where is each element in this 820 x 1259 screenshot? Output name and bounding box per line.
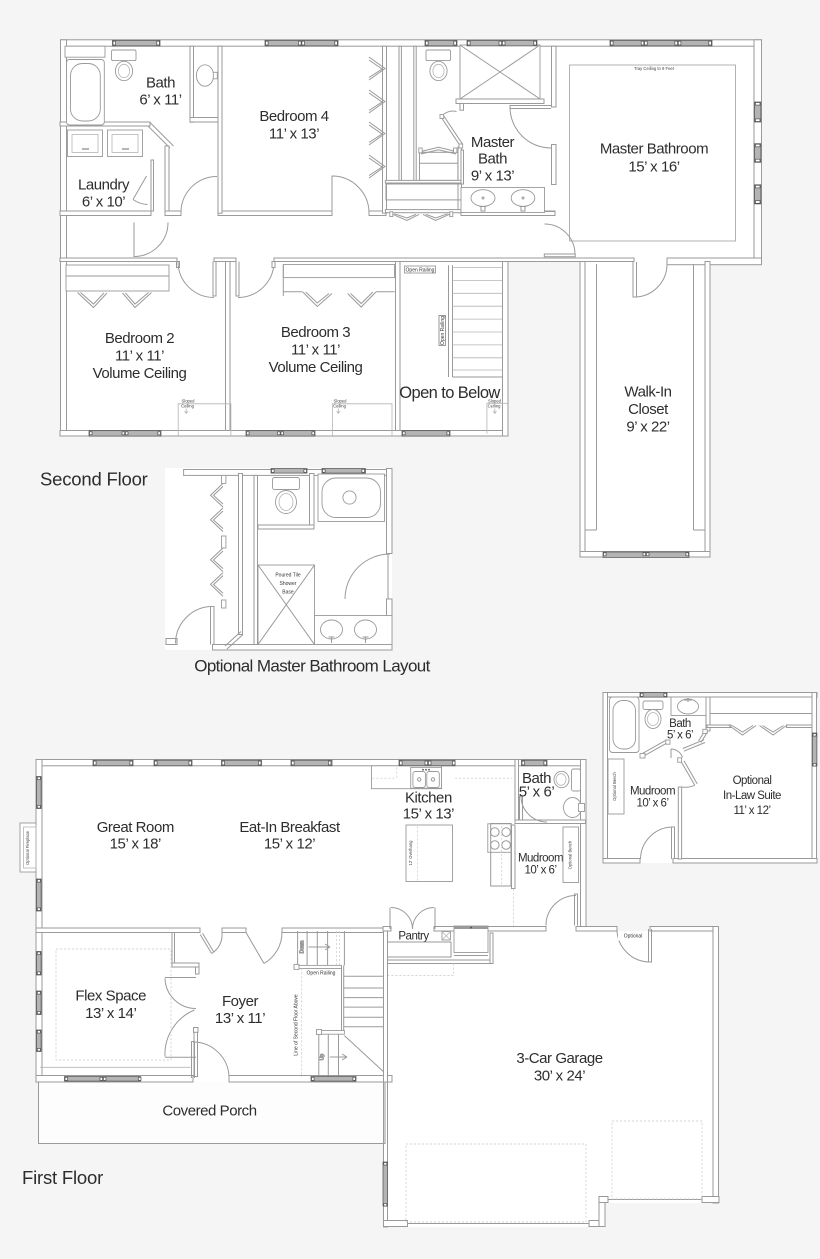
svg-text:Covered Porch: Covered Porch — [162, 1103, 256, 1120]
svg-text:10’ x 6’: 10’ x 6’ — [636, 798, 668, 810]
svg-text:13’ x 14’: 13’ x 14’ — [85, 1005, 136, 1022]
svg-text:Ceiling: Ceiling — [333, 404, 346, 409]
svg-text:Optional Bench: Optional Bench — [568, 840, 573, 869]
svg-text:Base: Base — [282, 590, 294, 596]
svg-text:Laundry: Laundry — [78, 177, 130, 194]
svg-text:Master Bathroom: Master Bathroom — [600, 141, 708, 158]
svg-text:30’ x 24’: 30’ x 24’ — [534, 1068, 585, 1085]
svg-text:Open Railing: Open Railing — [307, 971, 336, 977]
svg-text:5’ x 6’: 5’ x 6’ — [667, 730, 693, 742]
svg-text:11’ x 11’: 11’ x 11’ — [291, 342, 340, 359]
svg-text:15’ x 12’: 15’ x 12’ — [264, 836, 315, 853]
svg-text:Open to Below: Open to Below — [399, 384, 500, 402]
svg-text:Bath: Bath — [669, 718, 691, 730]
svg-text:Down: Down — [300, 940, 306, 953]
svg-text:13’ x 11’: 13’ x 11’ — [215, 1010, 265, 1027]
svg-text:Optional Master Bathroom Layou: Optional Master Bathroom Layout — [194, 657, 430, 676]
svg-text:Bedroom 3: Bedroom 3 — [281, 324, 350, 341]
svg-text:12’ Overhang: 12’ Overhang — [408, 840, 413, 866]
svg-text:Open Railing: Open Railing — [440, 316, 446, 345]
svg-text:15’ x 13’: 15’ x 13’ — [403, 806, 454, 823]
svg-text:Second Floor: Second Floor — [40, 469, 148, 490]
svg-text:9’ x 13’: 9’ x 13’ — [471, 168, 514, 185]
svg-text:15’ x 18’: 15’ x 18’ — [110, 836, 161, 853]
svg-text:Optional Fireplace: Optional Fireplace — [25, 830, 30, 865]
svg-text:Mudroom: Mudroom — [630, 786, 675, 798]
svg-text:In-Law Suite: In-Law Suite — [723, 790, 781, 802]
svg-text:First Floor: First Floor — [22, 1167, 103, 1188]
svg-text:Volume Ceiling: Volume Ceiling — [269, 359, 363, 376]
svg-text:Flex Space: Flex Space — [75, 988, 146, 1005]
svg-text:Great Room: Great Room — [97, 819, 174, 836]
svg-text:Shower: Shower — [280, 581, 297, 587]
svg-text:11’ x 11’: 11’ x 11’ — [115, 348, 164, 365]
svg-text:Line of Second Floor Above: Line of Second Floor Above — [294, 994, 300, 1056]
svg-text:11’ x 13’: 11’ x 13’ — [269, 126, 319, 143]
svg-text:6’ x 11’: 6’ x 11’ — [139, 92, 181, 109]
svg-text:10’ x 6’: 10’ x 6’ — [524, 865, 556, 877]
svg-text:Optional Bench: Optional Bench — [612, 772, 617, 801]
svg-text:Closet: Closet — [628, 401, 669, 418]
svg-text:Eat-In Breakfast: Eat-In Breakfast — [239, 819, 341, 836]
svg-text:Tray Ceiling to 9 Feet: Tray Ceiling to 9 Feet — [634, 66, 675, 71]
svg-text:Up: Up — [320, 1054, 326, 1061]
svg-text:Kitchen: Kitchen — [405, 790, 452, 807]
svg-text:Bedroom 4: Bedroom 4 — [259, 108, 328, 125]
svg-text:6’ x 10’: 6’ x 10’ — [82, 194, 125, 211]
svg-text:Mudroom: Mudroom — [518, 853, 563, 865]
svg-text:Walk-In: Walk-In — [624, 384, 671, 401]
svg-text:Master: Master — [471, 134, 515, 151]
svg-text:Foyer: Foyer — [222, 993, 259, 1010]
svg-text:Ceiling: Ceiling — [181, 404, 194, 409]
svg-text:Ceiling: Ceiling — [488, 404, 501, 409]
svg-text:9’ x 22’: 9’ x 22’ — [626, 419, 669, 436]
svg-text:3-Car Garage: 3-Car Garage — [516, 1050, 602, 1067]
svg-text:15’ x 16’: 15’ x 16’ — [628, 158, 679, 175]
svg-text:Optional: Optional — [733, 775, 772, 787]
svg-text:Pantry: Pantry — [398, 931, 429, 943]
svg-text:Sloped: Sloped — [181, 398, 195, 403]
svg-text:Bedroom 2: Bedroom 2 — [105, 330, 174, 347]
svg-text:Bath: Bath — [146, 75, 175, 92]
svg-text:Sloped: Sloped — [333, 398, 347, 403]
svg-text:Optional: Optional — [624, 934, 643, 940]
svg-text:Bath: Bath — [478, 151, 507, 168]
svg-text:11’ x 12’: 11’ x 12’ — [733, 805, 770, 817]
svg-text:Volume Ceiling: Volume Ceiling — [93, 365, 187, 382]
svg-text:Open Railing: Open Railing — [406, 267, 435, 273]
svg-text:Poured Tile: Poured Tile — [275, 573, 301, 579]
svg-text:5’ x 6’: 5’ x 6’ — [519, 784, 555, 801]
svg-text:Sloped: Sloped — [488, 398, 502, 403]
